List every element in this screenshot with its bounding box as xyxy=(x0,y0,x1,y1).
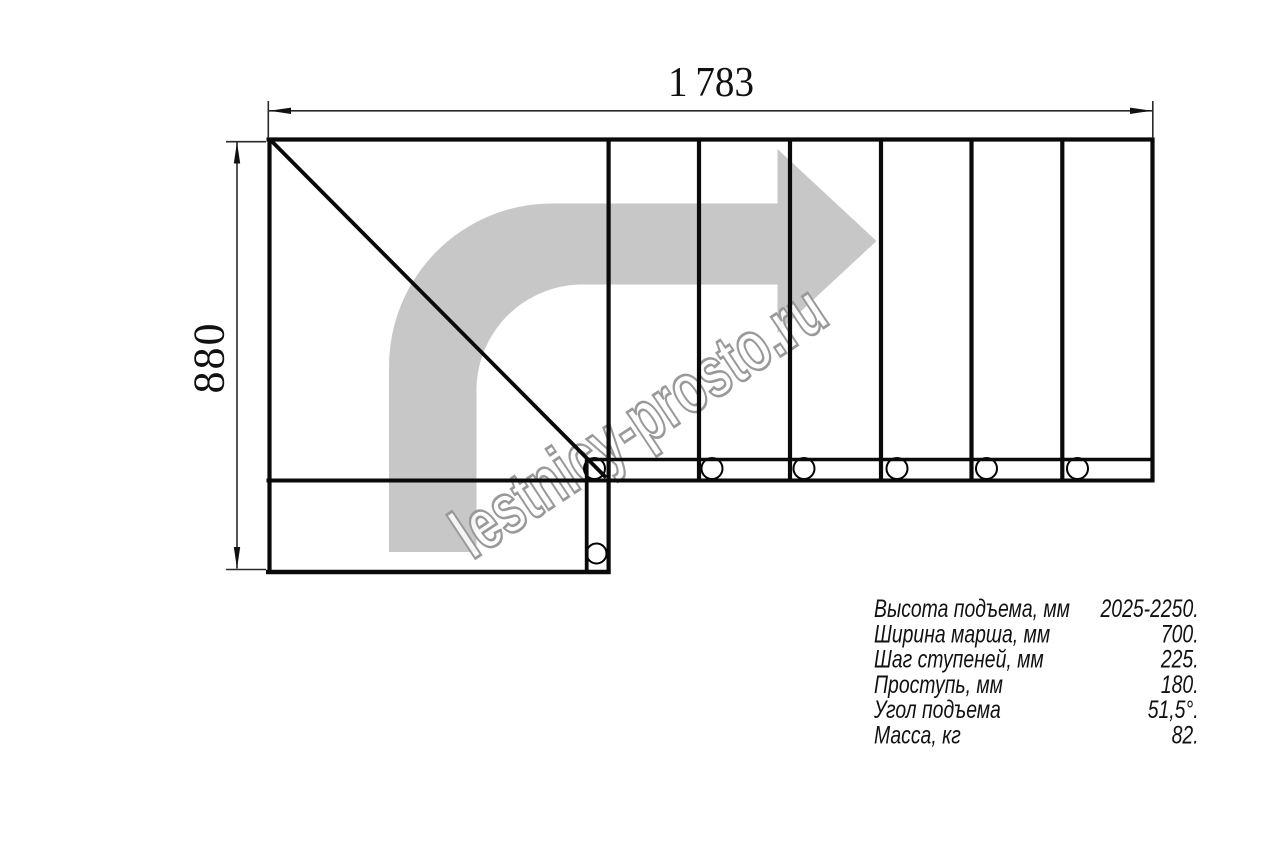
svg-text:Проступь, мм: Проступь, мм xyxy=(874,671,1003,699)
svg-text:Шаг ступеней, мм: Шаг ступеней, мм xyxy=(874,645,1044,673)
svg-text:880: 880 xyxy=(185,324,234,394)
svg-text:1 783: 1 783 xyxy=(668,60,754,106)
svg-text:225.: 225. xyxy=(1160,645,1199,673)
svg-text:82.: 82. xyxy=(1172,721,1199,749)
svg-text:Высота подъема, мм: Высота подъема, мм xyxy=(874,595,1070,623)
svg-text:Ширина марша, мм: Ширина марша, мм xyxy=(874,620,1050,648)
svg-text:2025-2250.: 2025-2250. xyxy=(1100,595,1199,623)
svg-text:700.: 700. xyxy=(1161,620,1199,648)
svg-text:Масса, кг: Масса, кг xyxy=(874,721,961,749)
svg-text:51,5°.: 51,5°. xyxy=(1148,696,1199,724)
svg-text:Угол подъема: Угол подъема xyxy=(873,696,1001,724)
svg-text:180.: 180. xyxy=(1161,671,1199,699)
